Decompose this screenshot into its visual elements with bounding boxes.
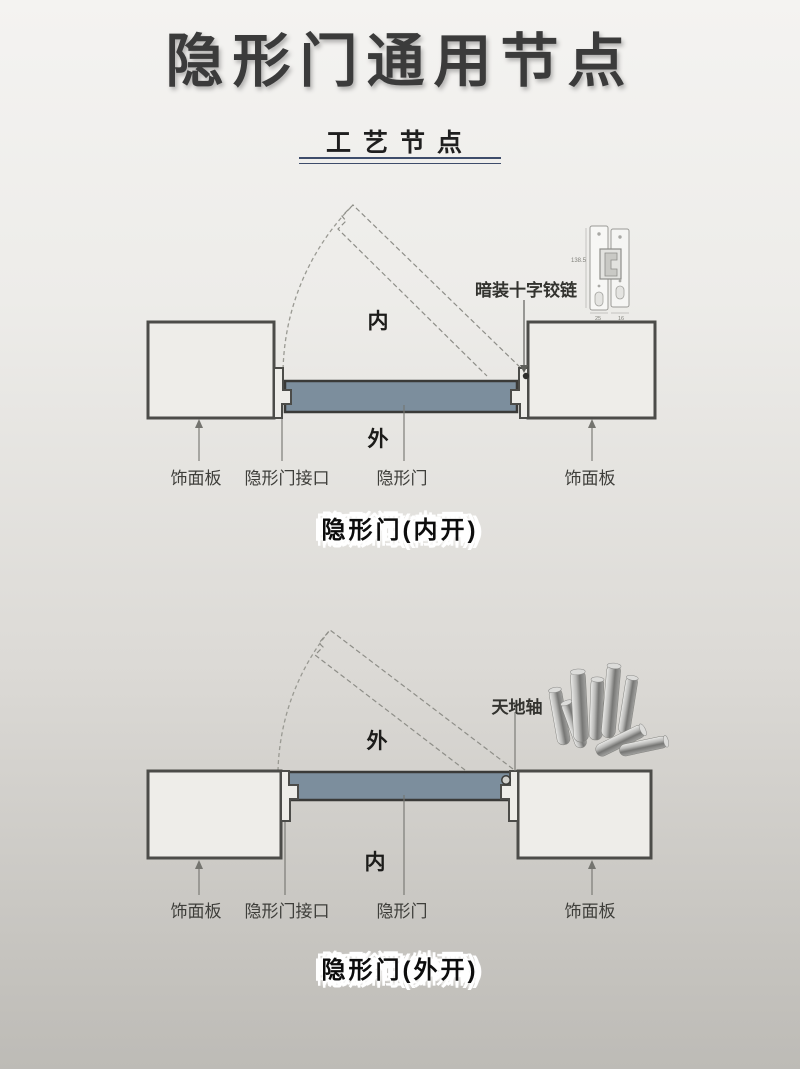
hinge-dim-a: 25 — [595, 316, 601, 322]
door-swing-arc — [283, 205, 353, 376]
diagram-inward: 138.5 25 16 — [148, 205, 655, 461]
label-line-arrow — [588, 860, 596, 869]
label-hidden-door: 隐形门 — [342, 897, 462, 922]
wall-panel-left — [148, 771, 281, 858]
label-line-arrow — [588, 419, 596, 428]
outer-side-label: 外 — [356, 423, 400, 453]
metal-pin — [618, 675, 639, 735]
hinge-dim-b: 16 — [618, 316, 624, 322]
hinge-label: 暗装十字铰链 — [450, 276, 602, 301]
door-panel — [287, 772, 515, 800]
door-panel — [285, 381, 517, 412]
label-hidden-door: 隐形门 — [342, 464, 462, 489]
hinge-dim-height: 138.5 — [571, 258, 587, 264]
label-door-joint: 隐形门接口 — [227, 464, 347, 489]
pivot-label: 天地轴 — [467, 693, 567, 718]
wall-panel-right — [518, 771, 651, 858]
wall-panel-right — [528, 322, 655, 418]
label-veneer-right: 饰面板 — [530, 464, 650, 489]
screw-slot — [616, 286, 624, 299]
inner-side-label: 内 — [353, 846, 397, 876]
wall-panel-left — [148, 322, 274, 418]
screw-hole — [618, 235, 621, 238]
label-door-joint: 隐形门接口 — [227, 897, 347, 922]
screw-hole — [597, 232, 600, 235]
diagram-outward — [148, 630, 670, 895]
door-swing-arc — [278, 630, 330, 771]
label-line-arrow — [195, 419, 203, 428]
label-line-arrow — [195, 860, 203, 869]
hinge-point — [523, 373, 529, 379]
caption-inward: 隐形门(内开) — [0, 510, 800, 545]
inner-side-label: 内 — [356, 305, 400, 335]
pivot-point — [502, 776, 510, 784]
label-veneer-right: 饰面板 — [530, 897, 650, 922]
caption-outward: 隐形门(外开) — [0, 950, 800, 985]
poster: 隐形门通用节点 工艺节点 — [0, 0, 800, 1069]
concealed-hinge-drawing: 138.5 25 16 — [571, 226, 629, 322]
outer-side-label: 外 — [355, 725, 399, 755]
screw-hole — [619, 280, 622, 283]
